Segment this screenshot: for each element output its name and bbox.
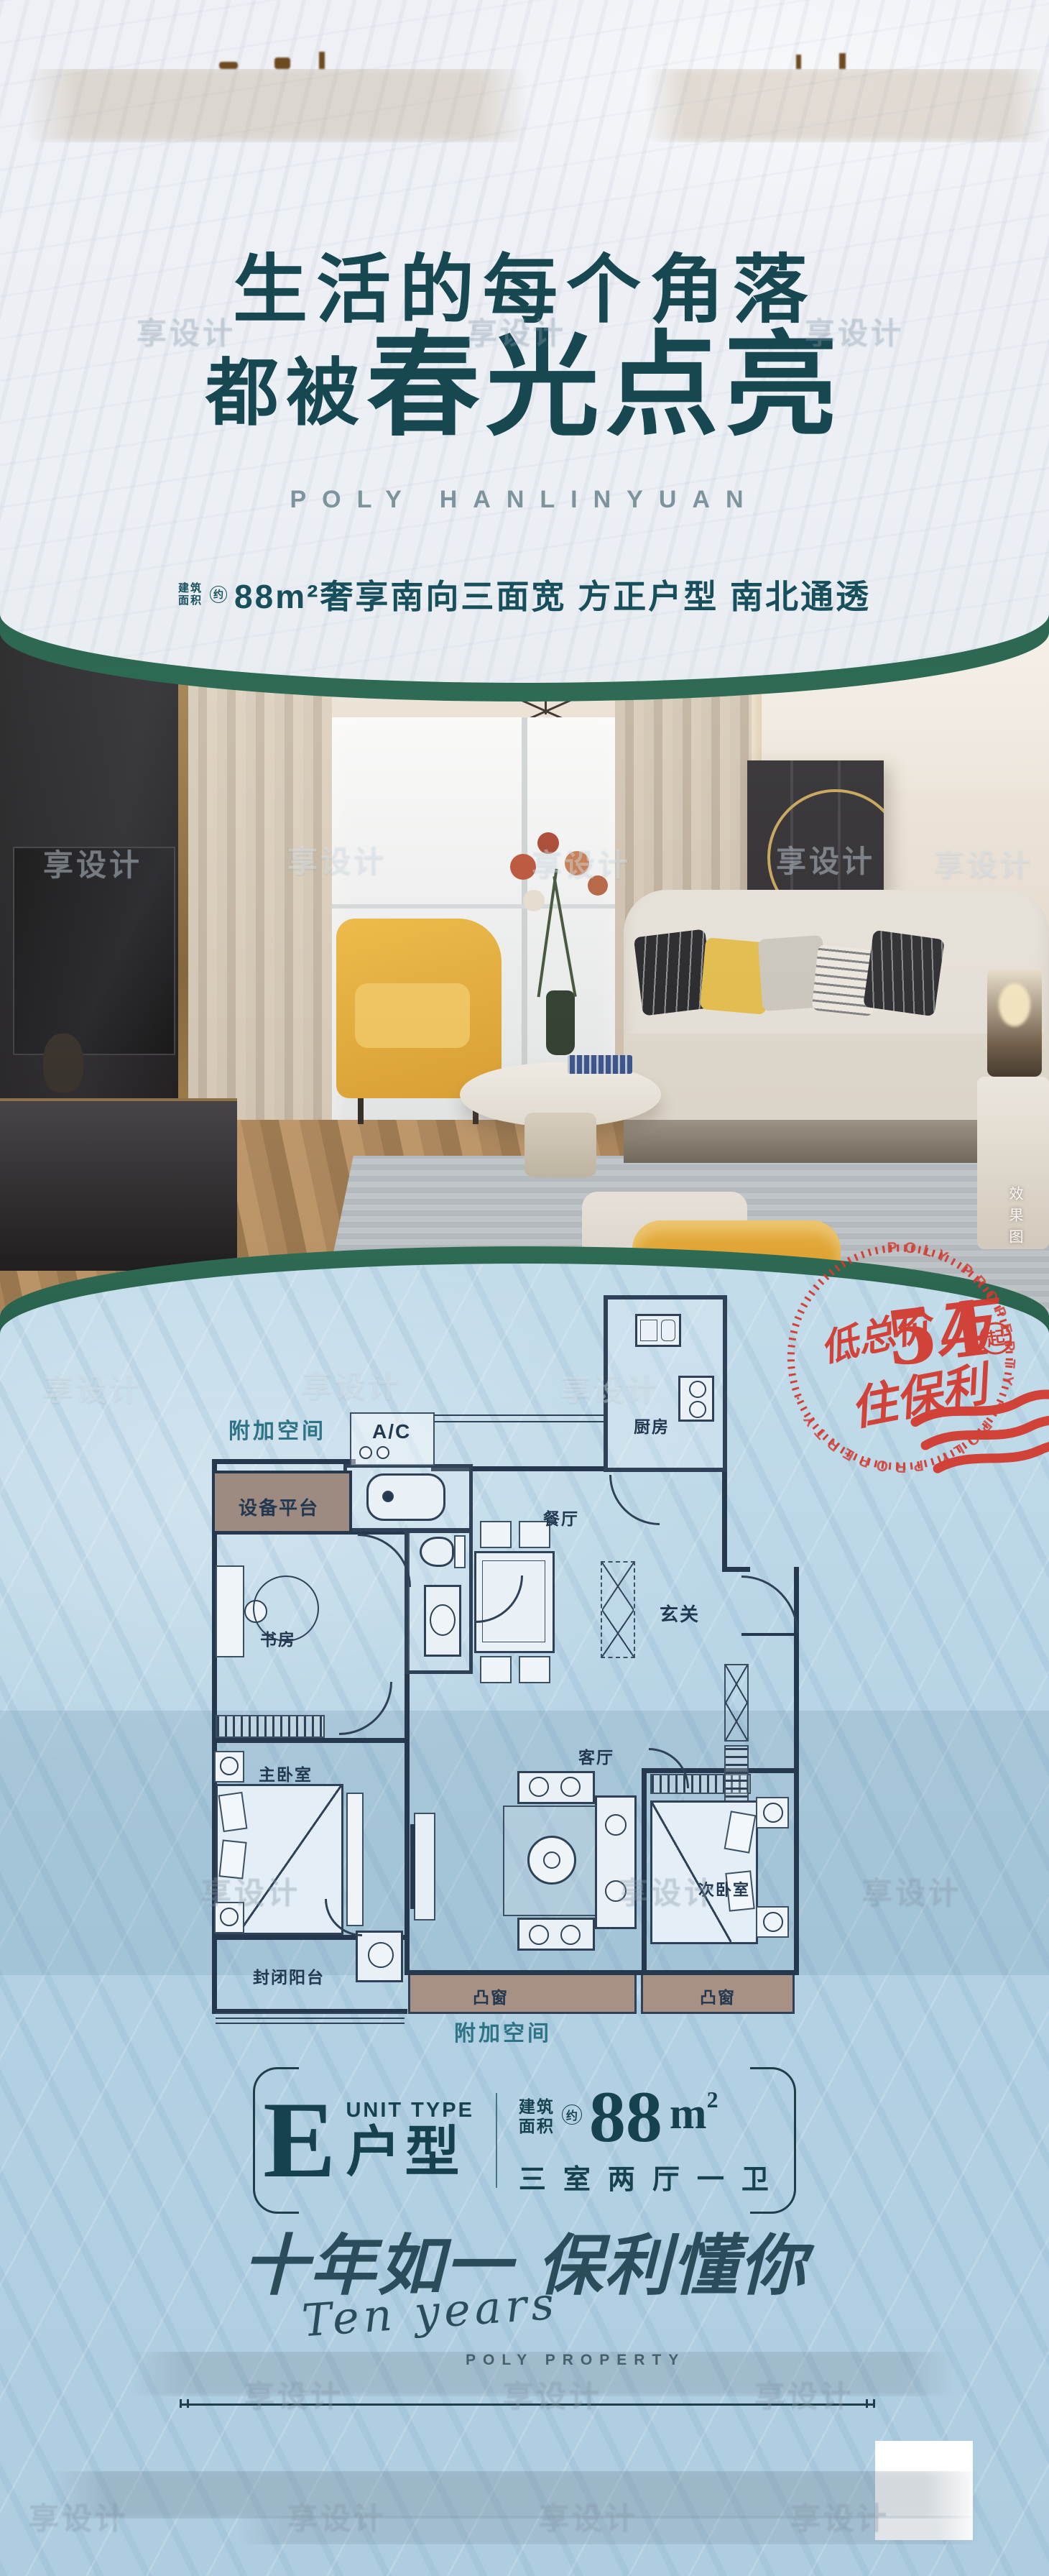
room-label-extra-top: 附加空间 [228,1413,326,1445]
room-label-balcony: 封闭阳台 [253,1964,325,1988]
area-sup: 2 [707,2087,718,2112]
tagline: 建筑 面积 约 88m²奢享南向三面宽 方正户型 南北通透 [0,571,1049,618]
tagline-circle-about: 约 [210,586,227,603]
room-label-living: 客厅 [578,1744,614,1768]
area-unit: m2 [670,2084,718,2145]
blurred-logo-right [645,69,1049,142]
toilet-tank [454,1535,466,1568]
blurred-disclaimer-band2 [237,2516,981,2544]
brand-en-line: POLY HANLINYUAN [0,486,1049,514]
tagline-prefix: 建筑 面积 [178,582,203,607]
area-prefix-bottom: 面积 [519,2117,555,2137]
stamp-line2: 住保利 [846,1356,998,1437]
lamp [763,1803,783,1823]
unit-type-cn: 户型 [346,2122,473,2183]
headline-line1: 生活的每个角落 [0,229,1049,337]
bay-window-center [408,1972,637,2014]
footer-divider [180,2403,875,2415]
balcony-window [216,2012,405,2025]
headline-line2-main: 春光点亮 [366,331,844,444]
bracket-right [750,2067,796,2214]
unit-divider [496,2093,497,2188]
bathtub [366,1473,445,1521]
tv-cabinet [414,1813,435,1920]
logo-mark [219,62,238,69]
room-label-extra-bottom: 附加空间 [454,2015,552,2047]
blurred-text-band [129,2352,956,2396]
blurred-logo-left [26,69,529,142]
area-prefix: 建筑 面积 [519,2097,555,2137]
room-label-dining: 餐厅 [543,1505,579,1529]
wardrobe-hatch [216,1715,325,1738]
unit-type-en: UNIT TYPE [346,2099,473,2122]
second-bed [650,1800,758,1944]
lamp [220,1757,239,1775]
toilet-bowl [420,1537,454,1567]
logo-mark [796,55,801,69]
logo-mark [274,57,290,69]
logo-mark [319,52,325,69]
headline-line2-prefix: 都被 [205,334,366,444]
dining-chair [519,1656,550,1683]
unit-type-block: E UNIT TYPE 户型 建筑 面积 约 88 m2 三室两厅一卫 [253,2067,796,2214]
stove [678,1376,714,1422]
tv-line [410,1824,415,1909]
room-label-equipment: 设备平台 [239,1494,319,1520]
room-label-ac: A/C [372,1420,411,1443]
stamp-circle-char: 起 [986,1327,1007,1350]
room-label-bedroom2: 次卧室 [698,1877,750,1900]
hero-section: 生活的每个角落 都被 春光点亮 POLY HANLINYUAN 建筑 面积 约 … [0,0,1049,683]
hall-closet [724,1664,749,1742]
price-stamp: POLY PROPERTY · POLY PROPERTY · 低总价 54 万… [744,1199,1049,1539]
blurred-disclaimer-band [50,2471,981,2518]
headline-line2: 都被 春光点亮 [0,331,1049,444]
room-label-master: 主卧室 [259,1761,313,1785]
kitchen-sink [635,1314,681,1347]
room-label-bay-r: 凸窗 [700,1984,736,2008]
room-label-entry: 玄关 [660,1600,700,1627]
room-label-kitchen: 厨房 [634,1413,670,1437]
north-window [435,1414,604,1422]
tagline-text: 88m²奢享南向三面宽 方正户型 南北通透 [234,571,871,618]
basin-bowl [430,1604,456,1636]
room-label-bay-c: 凸窗 [473,1984,509,2008]
lamp [220,1908,239,1926]
poster-page: 效果图 生活的每个角落 都被 春光点亮 POLY HANLINYUAN 建筑 面… [0,0,1049,2576]
tub-drain [382,1491,394,1502]
washer-door [368,1942,394,1968]
study-desk [216,1565,244,1657]
tagline-prefix-top: 建筑 [178,582,203,594]
rooms-line: 三室两厅一卫 [519,2157,786,2196]
dining-chair [480,1521,512,1548]
tagline-prefix-bottom: 面积 [178,594,203,607]
area-circle-about: 约 [562,2104,582,2125]
bracket-left [253,2067,299,2214]
lamp [763,1912,783,1932]
room-label-study: 书房 [260,1626,296,1650]
dining-chair [480,1656,512,1683]
area-value: 88 [589,2084,662,2150]
area-prefix-top: 建筑 [519,2097,555,2117]
entry-closet [601,1561,635,1658]
logo-mark [839,53,846,69]
